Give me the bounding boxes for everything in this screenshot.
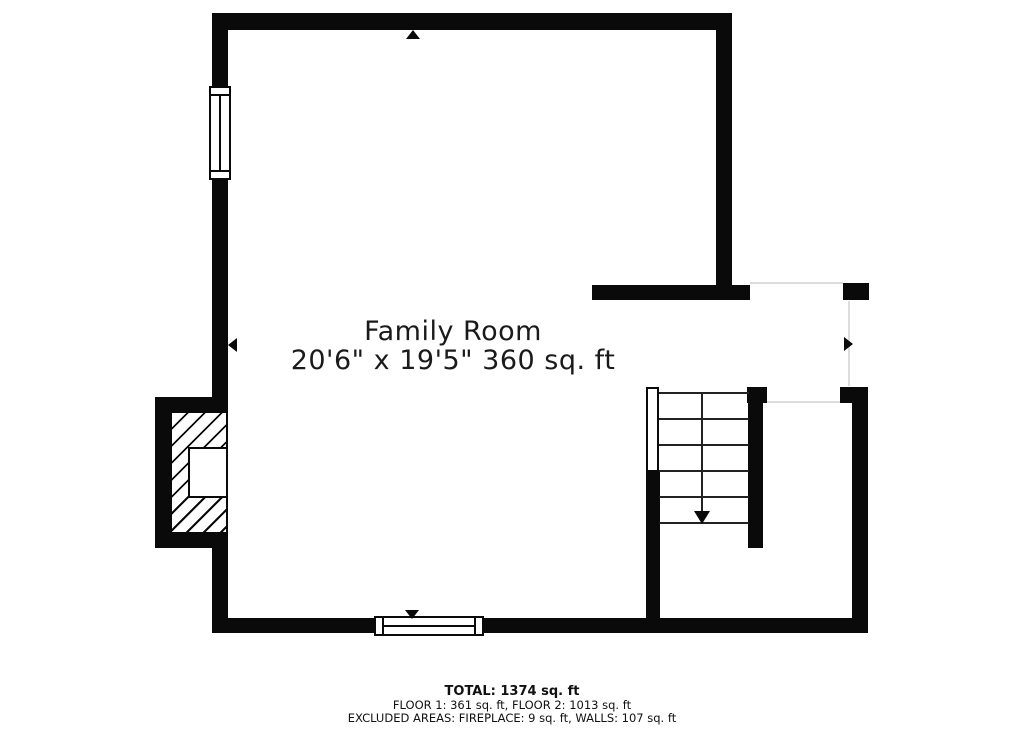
- floor-plan: Family Room 20'6" x 19'5" 360 sq. ft TOT…: [0, 0, 1024, 736]
- stair-run-line: [701, 393, 703, 512]
- wall-entry-stub: [843, 283, 869, 300]
- stair-rail: [646, 387, 659, 472]
- room-dimensions-label: 20'6" x 19'5" 360 sq. ft: [203, 346, 703, 375]
- wall-right-top-stub: [840, 387, 868, 403]
- stair-tread: [659, 392, 749, 394]
- wall-entry-vertical: [716, 13, 732, 300]
- wall-left-upper: [212, 13, 228, 87]
- window-pane-line: [219, 96, 221, 170]
- fireplace-firebox-icon: [188, 447, 228, 498]
- marker-up-arrow-icon: [406, 30, 420, 39]
- fireplace-wall-bottom: [155, 532, 228, 548]
- opening-line-top: [750, 282, 843, 284]
- wall-stair-middle: [748, 387, 763, 548]
- fireplace-wall-left: [155, 397, 172, 548]
- window-bottom-icon: [374, 616, 484, 636]
- wall-entry-fin: [592, 285, 750, 300]
- summary-excluded: EXCLUDED AREAS: FIREPLACE: 9 sq. ft, WAL…: [262, 712, 762, 725]
- stairs-down-arrow-icon: [694, 511, 710, 524]
- room-name-label: Family Room: [203, 317, 703, 346]
- wall-stair-middle-stub: [747, 387, 767, 403]
- marker-down-arrow-icon: [405, 610, 419, 619]
- window-left-icon: [209, 86, 231, 180]
- opening-line-landing: [767, 401, 840, 403]
- area-summary: TOTAL: 1374 sq. ft FLOOR 1: 361 sq. ft, …: [262, 684, 762, 725]
- stair-tread: [659, 418, 749, 420]
- window-pane-line: [384, 625, 474, 627]
- marker-right-arrow-icon: [844, 337, 853, 351]
- window-cap: [211, 170, 229, 172]
- window-cap: [474, 618, 476, 634]
- wall-top: [212, 13, 732, 30]
- room-label: Family Room 20'6" x 19'5" 360 sq. ft: [203, 317, 703, 375]
- stair-tread: [659, 496, 749, 498]
- summary-total: TOTAL: 1374 sq. ft: [262, 684, 762, 699]
- stair-tread: [659, 470, 749, 472]
- wall-bottom-right: [483, 618, 868, 633]
- wall-stair-left: [646, 472, 660, 633]
- wall-bottom-left: [212, 618, 377, 633]
- wall-right: [852, 387, 868, 633]
- stair-tread: [659, 444, 749, 446]
